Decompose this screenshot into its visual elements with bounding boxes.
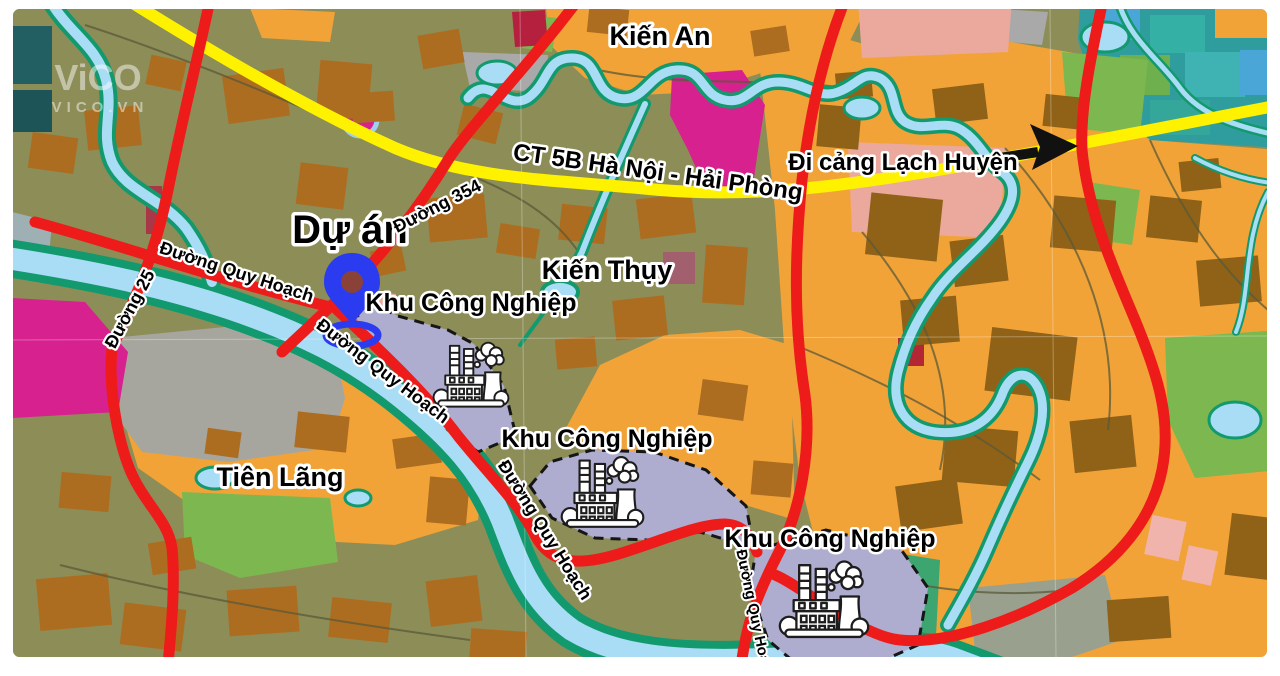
- label-port-direction: Đi cảng Lạch Huyện: [788, 149, 1017, 176]
- map-canvas: Kiến An Kiến Thụy Tiên Lãng Dự án CT 5B …: [0, 0, 1280, 676]
- label-kien-an: Kiến An: [610, 21, 711, 51]
- label-industrial-park-1: Khu Công Nghiệp: [365, 289, 576, 317]
- watermark-domain: VICO.VN: [52, 99, 149, 116]
- label-project: Dự án: [292, 208, 408, 252]
- label-industrial-park-3: Khu Công Nghiệp: [724, 525, 935, 553]
- watermark: ViCO VICO.VN: [52, 57, 149, 116]
- left-edge-blocks: [12, 26, 52, 132]
- watermark-brand: ViCO: [54, 57, 141, 98]
- label-industrial-park-2: Khu Công Nghiệp: [501, 425, 712, 453]
- planning-map-screenshot: Kiến An Kiến Thụy Tiên Lãng Dự án CT 5B …: [0, 0, 1280, 676]
- label-kien-thuy: Kiến Thụy: [542, 255, 673, 285]
- label-tien-lang: Tiên Lãng: [216, 462, 343, 492]
